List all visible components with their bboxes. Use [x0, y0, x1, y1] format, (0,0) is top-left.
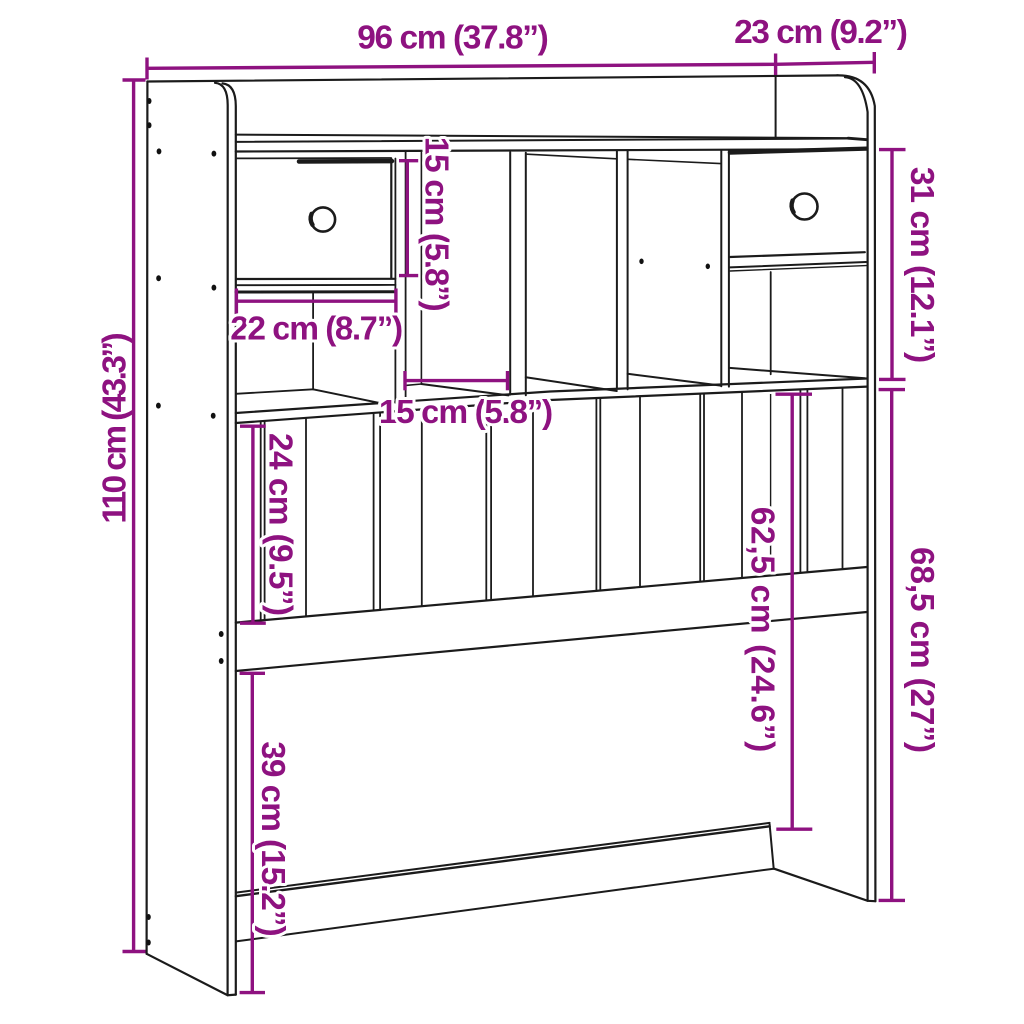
- svg-text:96 cm (37.8”): 96 cm (37.8”): [357, 19, 549, 56]
- svg-text:31 cm (12.1”): 31 cm (12.1”): [903, 167, 940, 363]
- svg-text:24 cm (9.5”): 24 cm (9.5”): [261, 433, 298, 616]
- svg-text:62,5 cm (24.6”): 62,5 cm (24.6”): [744, 507, 781, 753]
- svg-text:15 cm (5.8”): 15 cm (5.8”): [417, 137, 454, 312]
- svg-text:68,5 cm (27”): 68,5 cm (27”): [903, 547, 940, 753]
- svg-text:39 cm (15.2”): 39 cm (15.2”): [254, 741, 291, 936]
- svg-text:23 cm (9.2”): 23 cm (9.2”): [734, 14, 908, 51]
- svg-text:110 cm (43.3”): 110 cm (43.3”): [97, 332, 134, 523]
- svg-text:15 cm (5.8”): 15 cm (5.8”): [379, 394, 553, 431]
- svg-text:22 cm (8.7”): 22 cm (8.7”): [230, 311, 403, 348]
